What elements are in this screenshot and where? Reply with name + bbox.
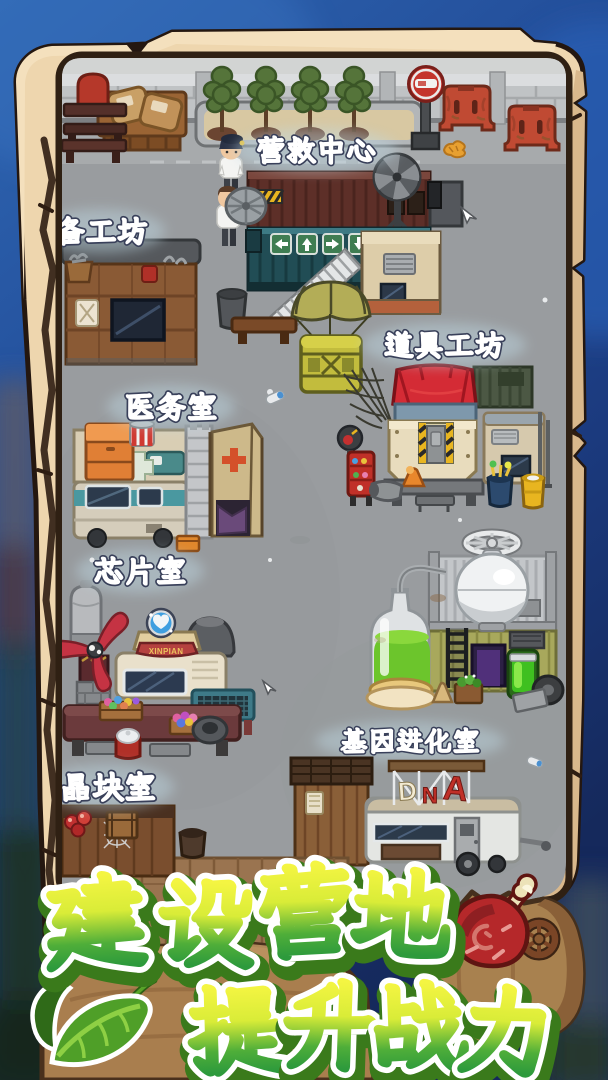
svg-text:N: N [422, 783, 438, 808]
svg-text:XINPIAN: XINPIAN [149, 647, 184, 656]
svg-text:A: A [442, 769, 470, 809]
svg-text:D: D [397, 775, 418, 806]
